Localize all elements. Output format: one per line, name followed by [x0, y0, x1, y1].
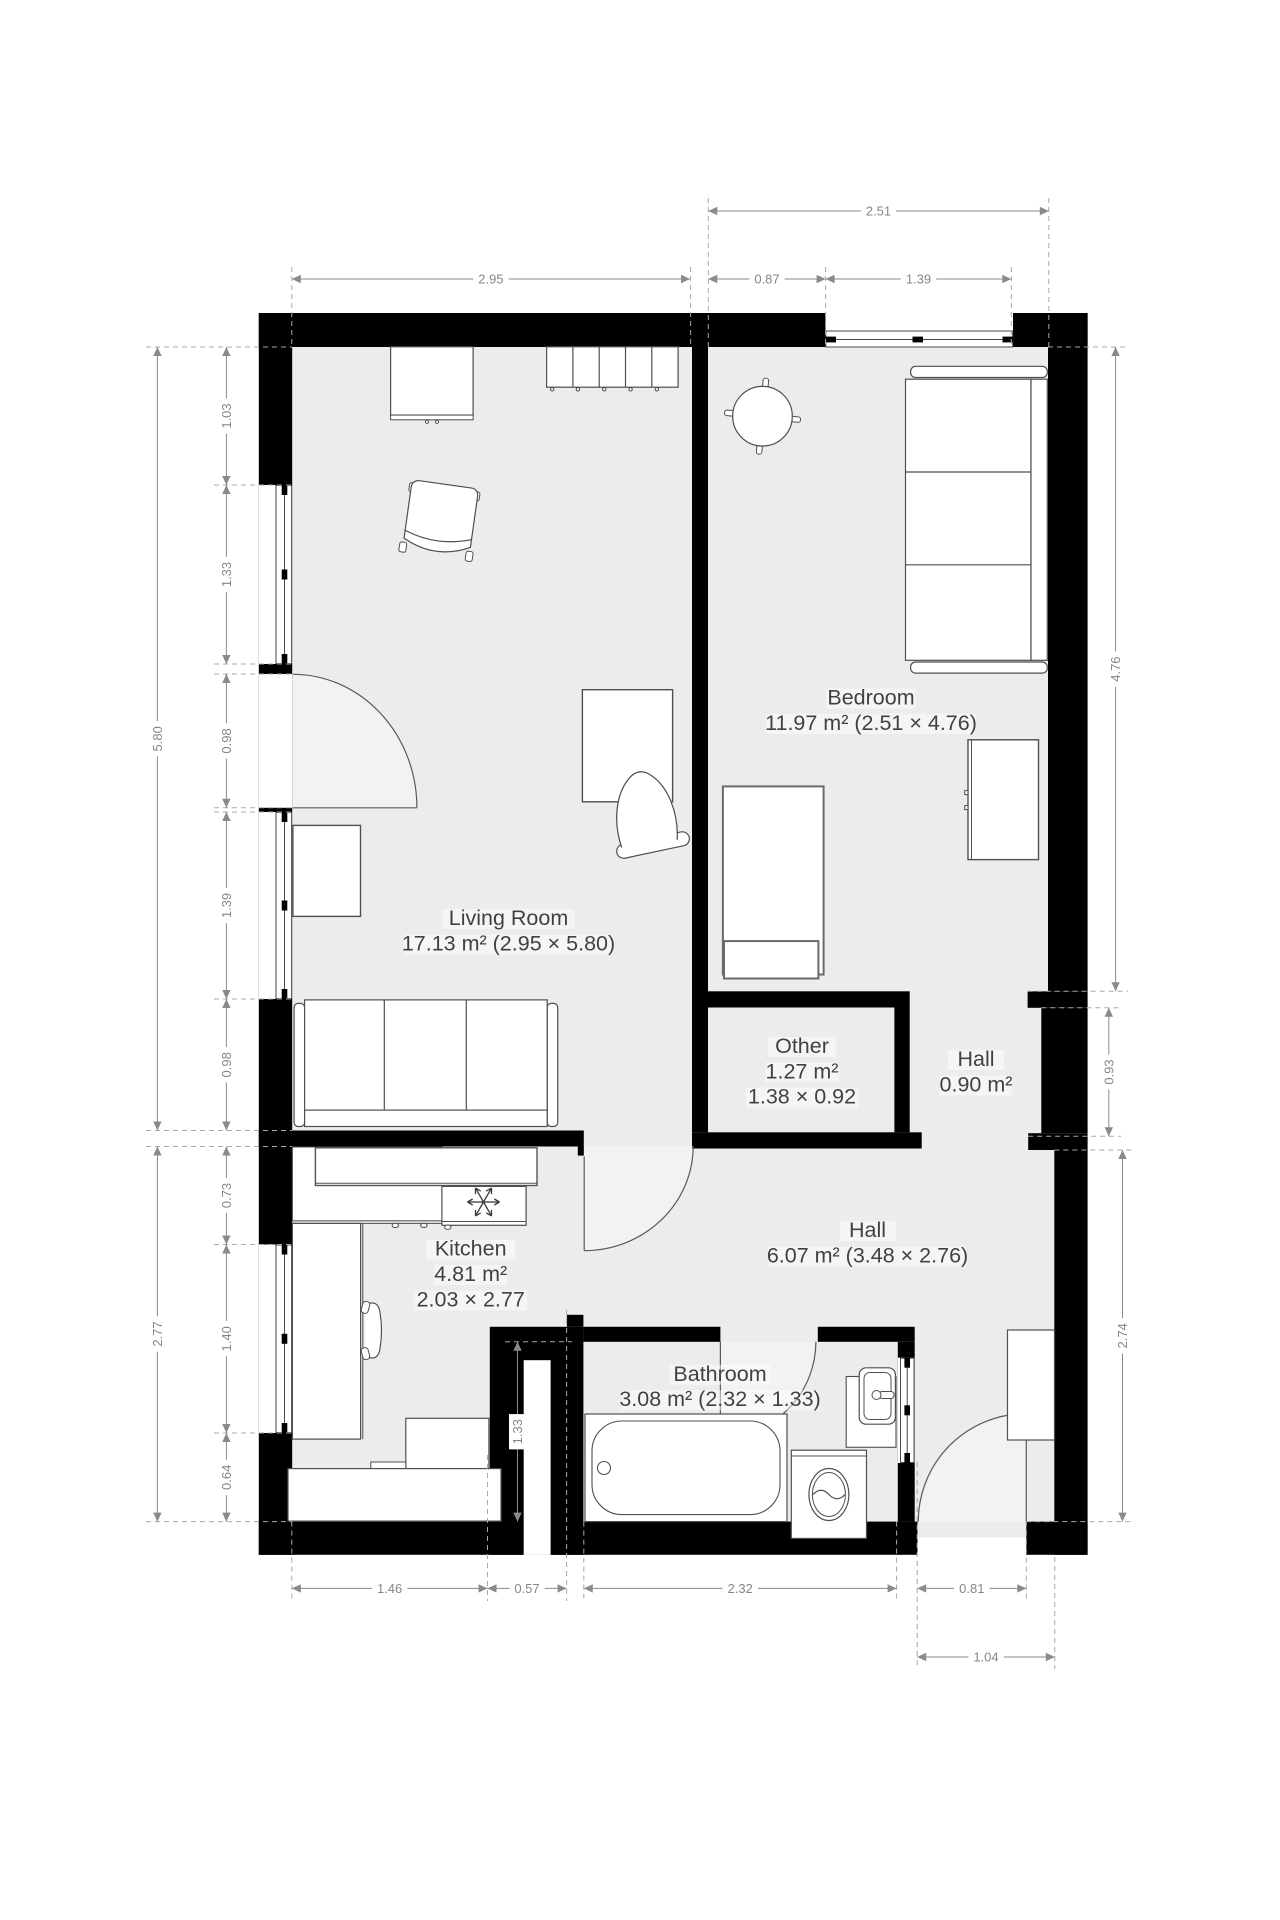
svg-text:1.39: 1.39 [219, 893, 234, 918]
svg-text:2.51: 2.51 [866, 204, 891, 219]
svg-text:2.95: 2.95 [478, 272, 503, 287]
svg-text:1.03: 1.03 [219, 403, 234, 428]
svg-text:0.64: 0.64 [219, 1465, 234, 1490]
svg-text:1.46: 1.46 [377, 1581, 402, 1596]
svg-text:2.32: 2.32 [728, 1581, 753, 1596]
svg-text:4.76: 4.76 [1108, 656, 1123, 681]
svg-text:3.08 m² (2.32 × 1.33): 3.08 m² (2.32 × 1.33) [619, 1387, 820, 1411]
svg-text:0.73: 0.73 [219, 1183, 234, 1208]
svg-text:0.98: 0.98 [219, 728, 234, 753]
svg-text:0.93: 0.93 [1101, 1059, 1116, 1084]
svg-text:2.74: 2.74 [1115, 1323, 1130, 1348]
svg-text:Kitchen: Kitchen [435, 1237, 507, 1261]
svg-text:1.27 m²: 1.27 m² [766, 1059, 839, 1083]
svg-text:1.39: 1.39 [906, 272, 931, 287]
svg-text:1.40: 1.40 [219, 1326, 234, 1351]
svg-text:6.07 m² (3.48 × 2.76): 6.07 m² (3.48 × 2.76) [767, 1244, 968, 1268]
svg-text:Hall: Hall [957, 1047, 994, 1071]
svg-text:2.03 × 2.77: 2.03 × 2.77 [417, 1288, 525, 1312]
svg-text:Bathroom: Bathroom [673, 1362, 766, 1386]
svg-text:11.97 m² (2.51 × 4.76): 11.97 m² (2.51 × 4.76) [765, 711, 977, 735]
svg-text:0.87: 0.87 [754, 272, 779, 287]
svg-text:4.81 m²: 4.81 m² [434, 1262, 507, 1286]
svg-text:Bedroom: Bedroom [827, 686, 914, 710]
svg-text:Living Room: Living Room [449, 906, 569, 930]
svg-text:Other: Other [775, 1034, 829, 1058]
svg-text:1.38 × 0.92: 1.38 × 0.92 [748, 1085, 856, 1109]
svg-text:0.81: 0.81 [959, 1581, 984, 1596]
svg-text:5.80: 5.80 [150, 726, 165, 751]
svg-text:1.33: 1.33 [510, 1419, 525, 1444]
svg-text:1.04: 1.04 [973, 1650, 998, 1665]
svg-text:0.57: 0.57 [514, 1581, 539, 1596]
svg-text:0.98: 0.98 [219, 1052, 234, 1077]
svg-text:2.77: 2.77 [150, 1321, 165, 1346]
svg-text:1.33: 1.33 [219, 562, 234, 587]
svg-text:17.13 m² (2.95 × 5.80): 17.13 m² (2.95 × 5.80) [402, 932, 615, 956]
svg-text:0.90 m²: 0.90 m² [940, 1073, 1013, 1097]
svg-text:Hall: Hall [849, 1218, 886, 1242]
